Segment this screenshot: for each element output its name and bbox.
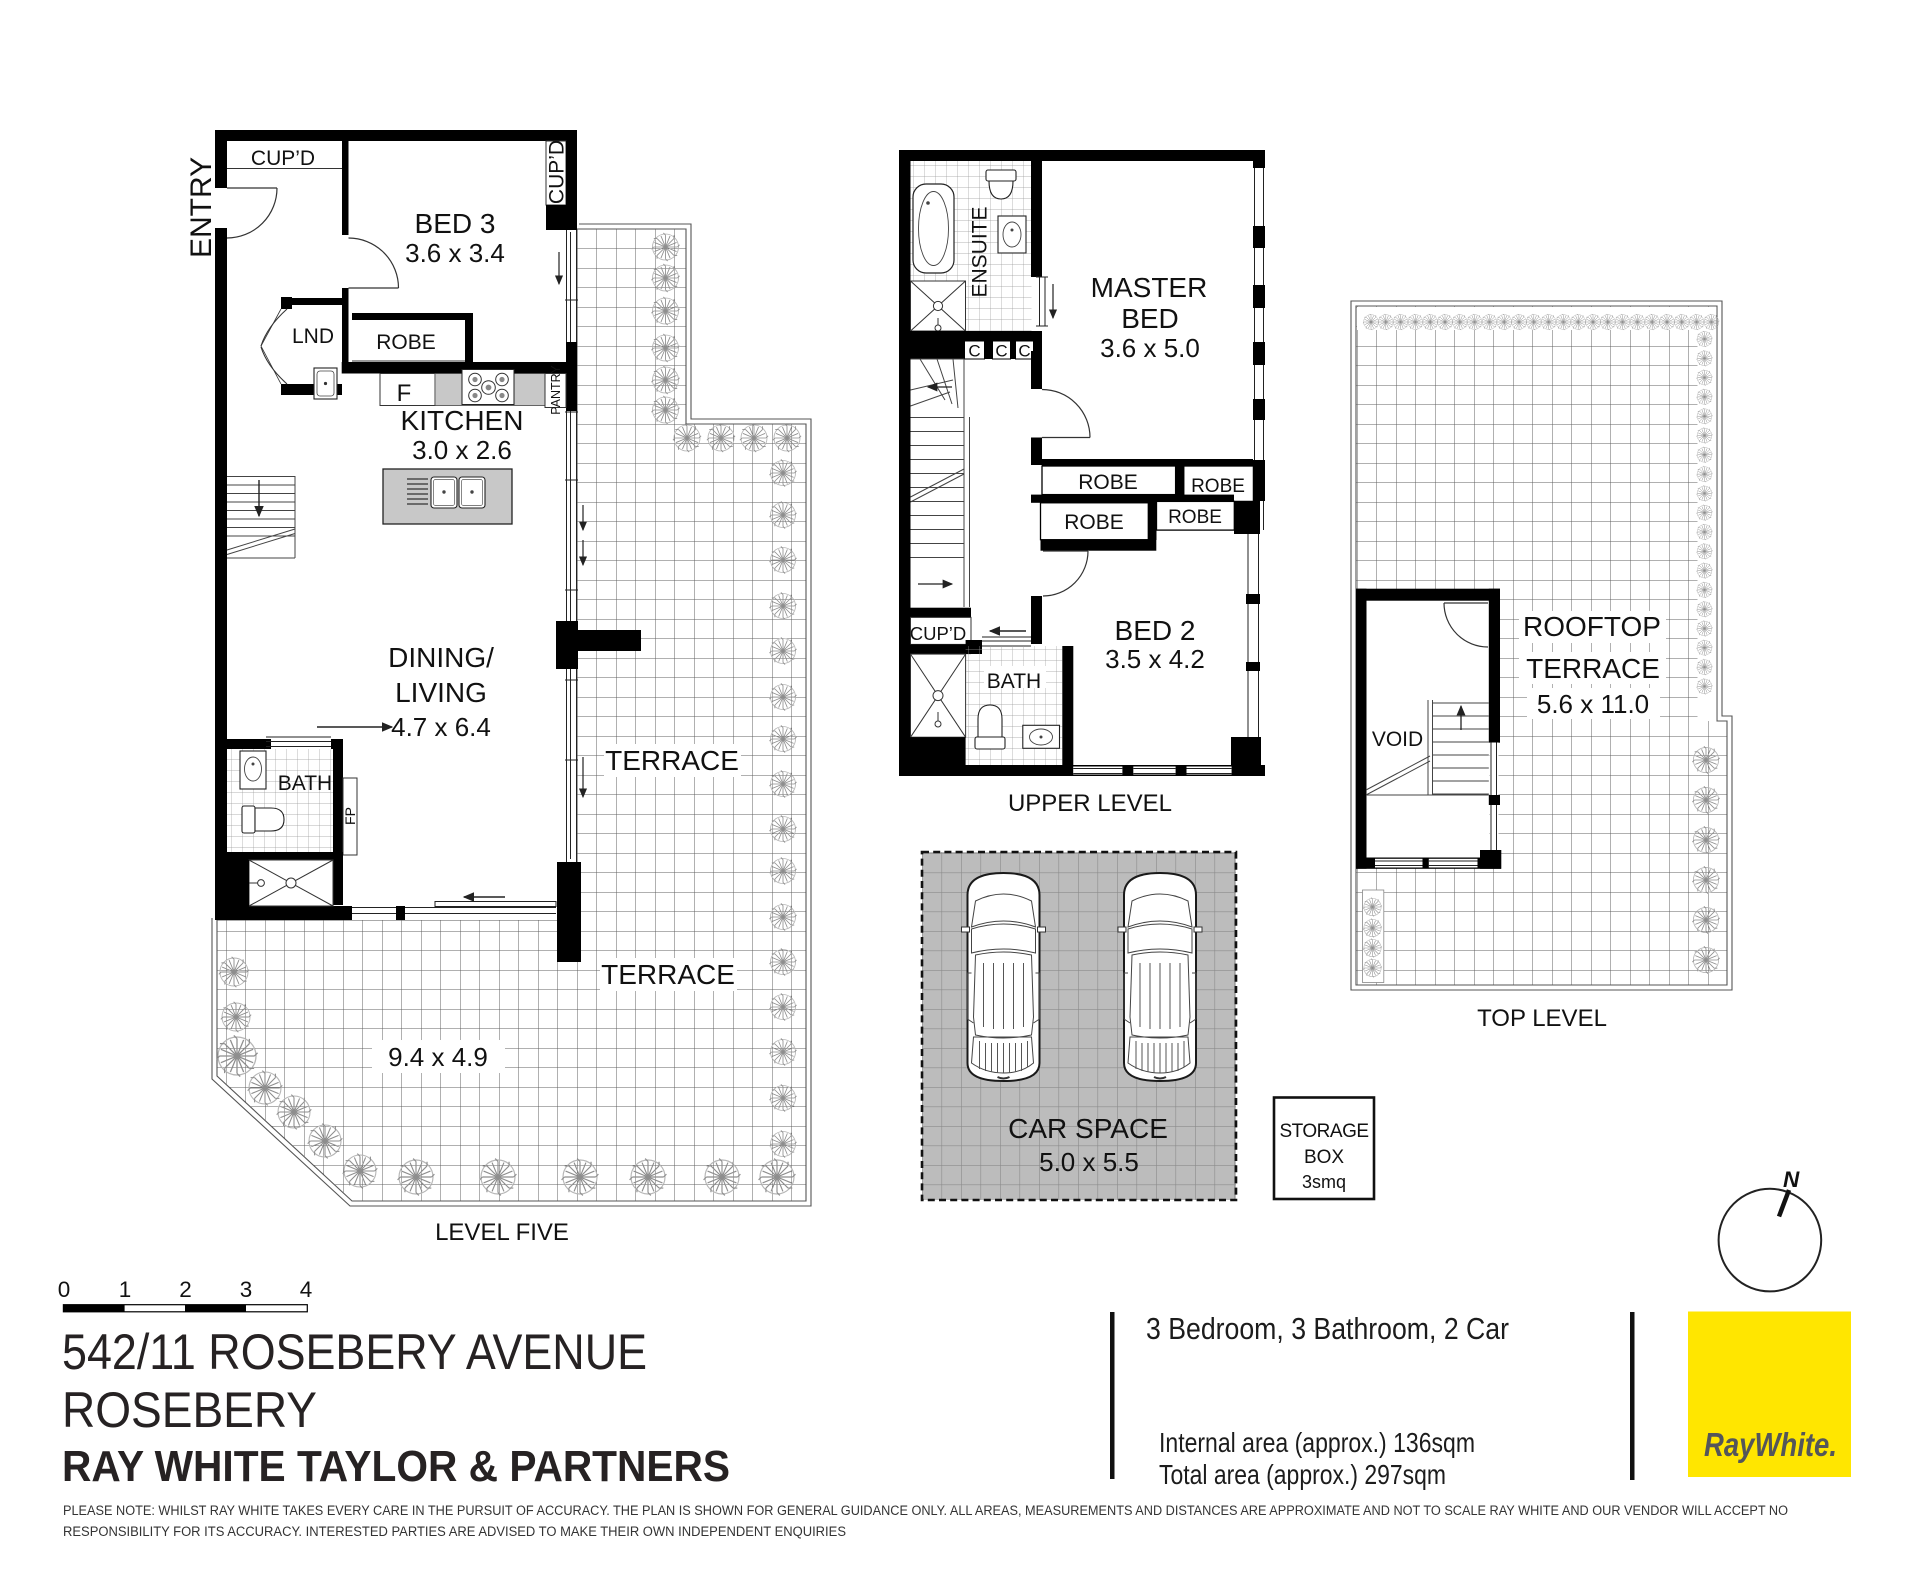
svg-text:ROOFTOP: ROOFTOP [1523,611,1661,642]
svg-text:C: C [995,342,1007,361]
svg-text:LEVEL FIVE: LEVEL FIVE [435,1219,569,1246]
svg-text:ROBE: ROBE [1078,471,1138,494]
svg-text:DINING/: DINING/ [388,642,494,673]
svg-text:BED 3: BED 3 [415,208,496,239]
svg-text:3: 3 [240,1277,253,1302]
svg-text:ROSEBERY: ROSEBERY [62,1382,317,1438]
svg-text:STORAGE: STORAGE [1279,1121,1368,1142]
svg-text:CUP’D: CUP’D [546,140,569,204]
svg-text:542/11 ROSEBERY AVENUE: 542/11 ROSEBERY AVENUE [62,1324,647,1380]
svg-text:LIVING: LIVING [395,677,487,708]
svg-text:VOID: VOID [1372,728,1423,751]
svg-text:TERRACE: TERRACE [605,745,739,776]
svg-text:MASTER: MASTER [1091,272,1208,303]
svg-text:C: C [1018,342,1030,361]
svg-text:KITCHEN: KITCHEN [401,405,524,436]
svg-text:3smq: 3smq [1302,1172,1346,1192]
svg-text:BOX: BOX [1304,1147,1344,1168]
svg-text:Total area (approx.) 297sqm: Total area (approx.) 297sqm [1159,1459,1446,1490]
svg-text:4: 4 [300,1277,313,1302]
svg-text:BED 2: BED 2 [1115,615,1196,646]
svg-text:4.7 x 6.4: 4.7 x 6.4 [391,712,491,742]
svg-text:ROBE: ROBE [1064,511,1124,534]
svg-text:CUP’D: CUP’D [251,147,315,170]
svg-text:RayWhite.: RayWhite. [1704,1427,1837,1464]
svg-text:N: N [1783,1167,1800,1192]
svg-text:C: C [968,342,980,361]
svg-text:BATH: BATH [278,772,332,795]
svg-text:3.6 x 5.0: 3.6 x 5.0 [1100,333,1200,363]
svg-text:RESPONSIBILITY FOR ITS ACCURAC: RESPONSIBILITY FOR ITS ACCURACY. INTERES… [63,1524,846,1539]
svg-text:TERRACE: TERRACE [1526,653,1660,684]
svg-text:TERRACE: TERRACE [601,959,735,990]
svg-text:BED: BED [1121,303,1179,334]
svg-text:0: 0 [58,1277,71,1302]
svg-text:ROBE: ROBE [376,331,436,354]
svg-text:TOP LEVEL: TOP LEVEL [1477,1005,1607,1032]
svg-text:ROBE: ROBE [1168,507,1222,528]
svg-text:CUP’D: CUP’D [910,623,967,644]
svg-text:3.6 x 3.4: 3.6 x 3.4 [405,238,505,268]
svg-text:FP: FP [342,807,358,825]
svg-text:ROBE: ROBE [1191,476,1245,497]
svg-text:Internal area (approx.) 136sqm: Internal area (approx.) 136sqm [1159,1427,1475,1458]
svg-text:UPPER LEVEL: UPPER LEVEL [1008,790,1172,817]
svg-text:CAR SPACE: CAR SPACE [1008,1113,1168,1144]
svg-text:LND: LND [292,325,334,348]
svg-text:PLEASE NOTE: WHILST RAY WHITE: PLEASE NOTE: WHILST RAY WHITE TAKES EVER… [63,1503,1788,1518]
svg-text:RAY WHITE TAYLOR & PARTNERS: RAY WHITE TAYLOR & PARTNERS [62,1442,730,1491]
svg-text:9.4 x 4.9: 9.4 x 4.9 [388,1042,488,1072]
svg-text:5.6 x 11.0: 5.6 x 11.0 [1537,689,1649,719]
svg-text:ENTRY: ENTRY [185,157,218,258]
svg-text:BATH: BATH [987,670,1041,693]
svg-text:PANTRY: PANTRY [549,365,563,415]
svg-text:3.5 x 4.2: 3.5 x 4.2 [1105,644,1205,674]
svg-text:2: 2 [179,1277,192,1302]
svg-text:5.0 x 5.5: 5.0 x 5.5 [1039,1147,1139,1177]
svg-text:F: F [397,380,412,407]
svg-text:ENSUITE: ENSUITE [969,206,992,297]
svg-text:3.0 x 2.6: 3.0 x 2.6 [412,435,512,465]
svg-text:3 Bedroom, 3 Bathroom, 2 Car: 3 Bedroom, 3 Bathroom, 2 Car [1146,1312,1509,1346]
svg-text:1: 1 [119,1277,132,1302]
